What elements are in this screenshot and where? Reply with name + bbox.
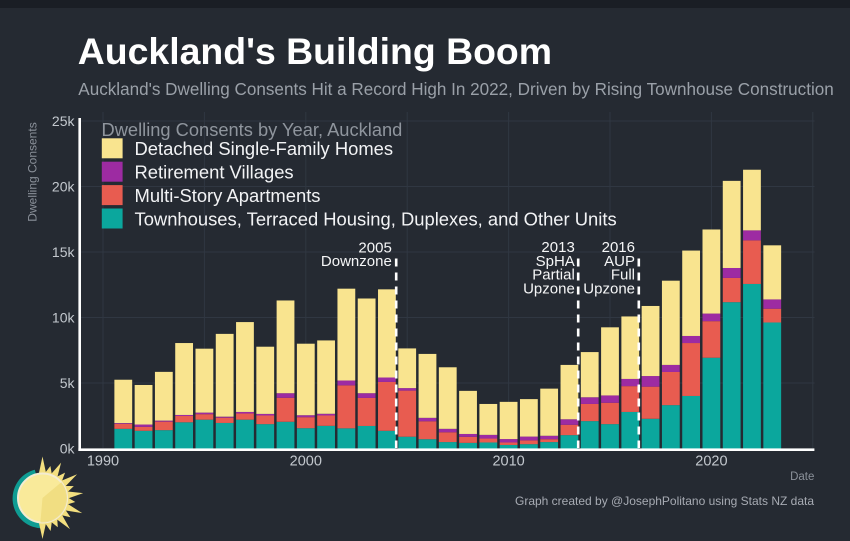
svg-text:20k: 20k [52,178,76,194]
svg-text:Townhouses, Terraced Housing,: Townhouses, Terraced Housing, Duplexes, … [135,208,617,229]
svg-text:15k: 15k [52,244,76,260]
svg-text:2010: 2010 [492,453,524,469]
svg-text:5k: 5k [60,375,76,391]
svg-text:Retirement Villages: Retirement Villages [135,162,294,183]
svg-text:10k: 10k [52,309,76,325]
svg-text:Detached Single-Family Homes: Detached Single-Family Homes [135,138,394,159]
svg-text:0k: 0k [60,440,76,456]
svg-text:Multi-Story Apartments: Multi-Story Apartments [135,185,321,206]
svg-text:Dwelling Consents: Dwelling Consents [26,122,40,221]
svg-text:Auckland's Building Boom: Auckland's Building Boom [78,30,552,72]
svg-text:Date: Date [790,471,814,483]
svg-text:25k: 25k [52,113,76,129]
svg-text:Dwelling Consents by Year, Auc: Dwelling Consents by Year, Auckland [102,119,403,140]
svg-text:Graph created by @JosephPolita: Graph created by @JosephPolitano using S… [515,494,814,508]
svg-text:2020: 2020 [695,453,727,469]
svg-text:2000: 2000 [290,453,322,469]
svg-text:1990: 1990 [87,453,119,469]
svg-text:Auckland's Dwelling Consents H: Auckland's Dwelling Consents Hit a Recor… [78,80,833,99]
